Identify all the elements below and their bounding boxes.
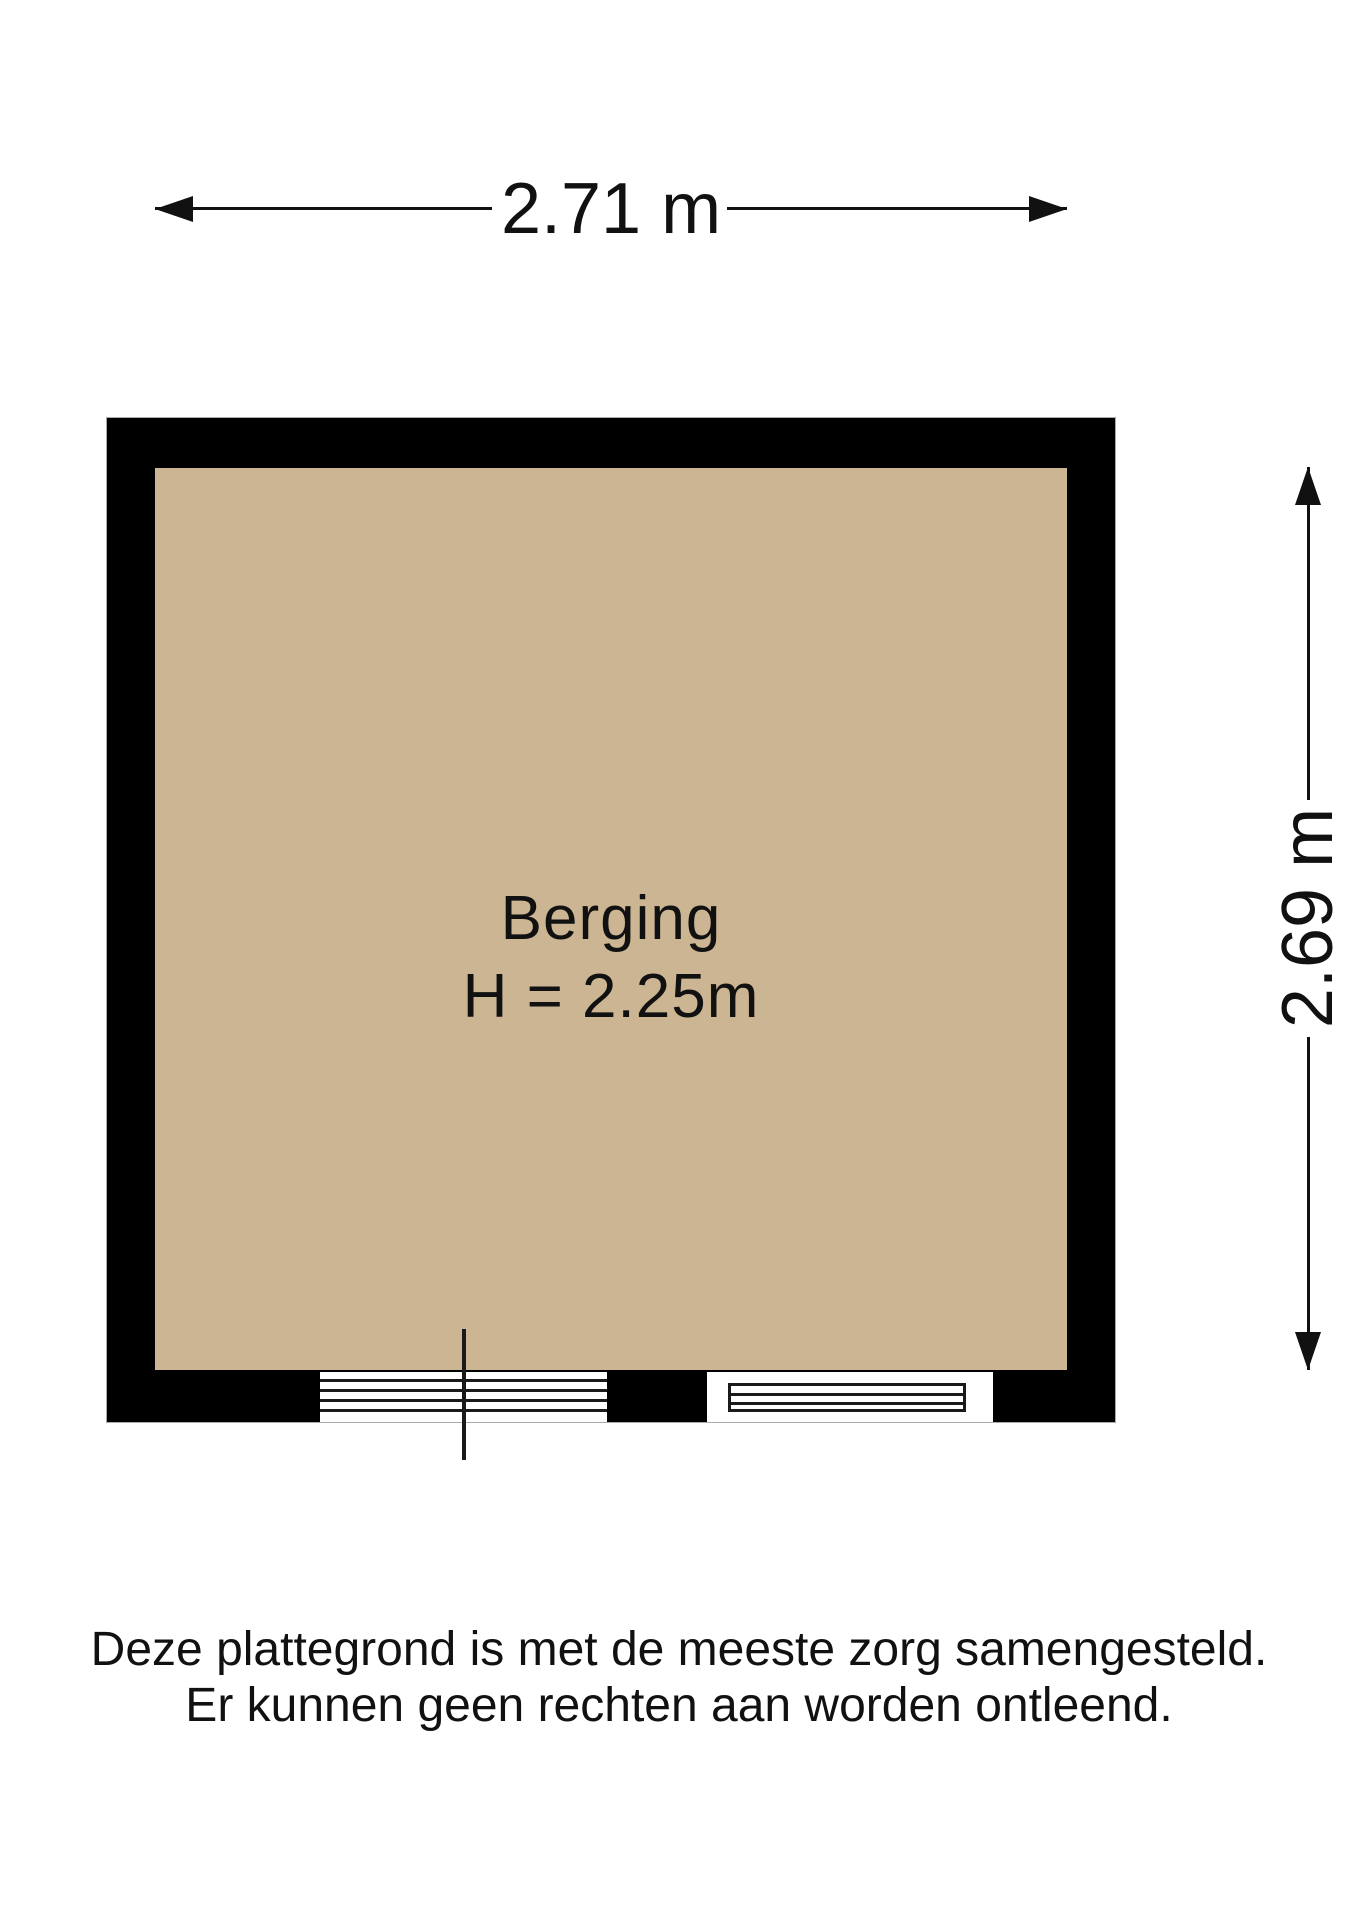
room-name-label: Berging [463, 880, 760, 958]
depth-dimension-label: 2.69 m [1267, 808, 1349, 1028]
arrowhead-right-icon [1029, 196, 1067, 222]
window-frame [728, 1383, 966, 1412]
width-dimension-line [155, 207, 492, 210]
room-height-label: H = 2.25m [463, 958, 760, 1036]
disclaimer-line-1: Deze plattegrond is met de meeste zorg s… [0, 1622, 1358, 1678]
width-dimension-line [727, 207, 1067, 210]
width-dimension-label: 2.71 m [501, 168, 721, 250]
disclaimer: Deze plattegrond is met de meeste zorg s… [0, 1622, 1358, 1734]
room-label: Berging H = 2.25m [463, 880, 760, 1036]
arrowhead-down-icon [1295, 1332, 1321, 1370]
door-opening-line [462, 1329, 466, 1460]
depth-dimension-line [1307, 1037, 1310, 1370]
arrowhead-up-icon [1295, 467, 1321, 505]
disclaimer-line-2: Er kunnen geen rechten aan worden ontlee… [0, 1678, 1358, 1734]
floorplan-canvas: 2.71 m Berging H = 2.25m 2.69 m Deze pla… [0, 0, 1358, 1920]
window-pane-line [731, 1393, 963, 1396]
depth-dimension-line [1307, 467, 1310, 800]
arrowhead-left-icon [155, 196, 193, 222]
window-pane-line [731, 1402, 963, 1405]
